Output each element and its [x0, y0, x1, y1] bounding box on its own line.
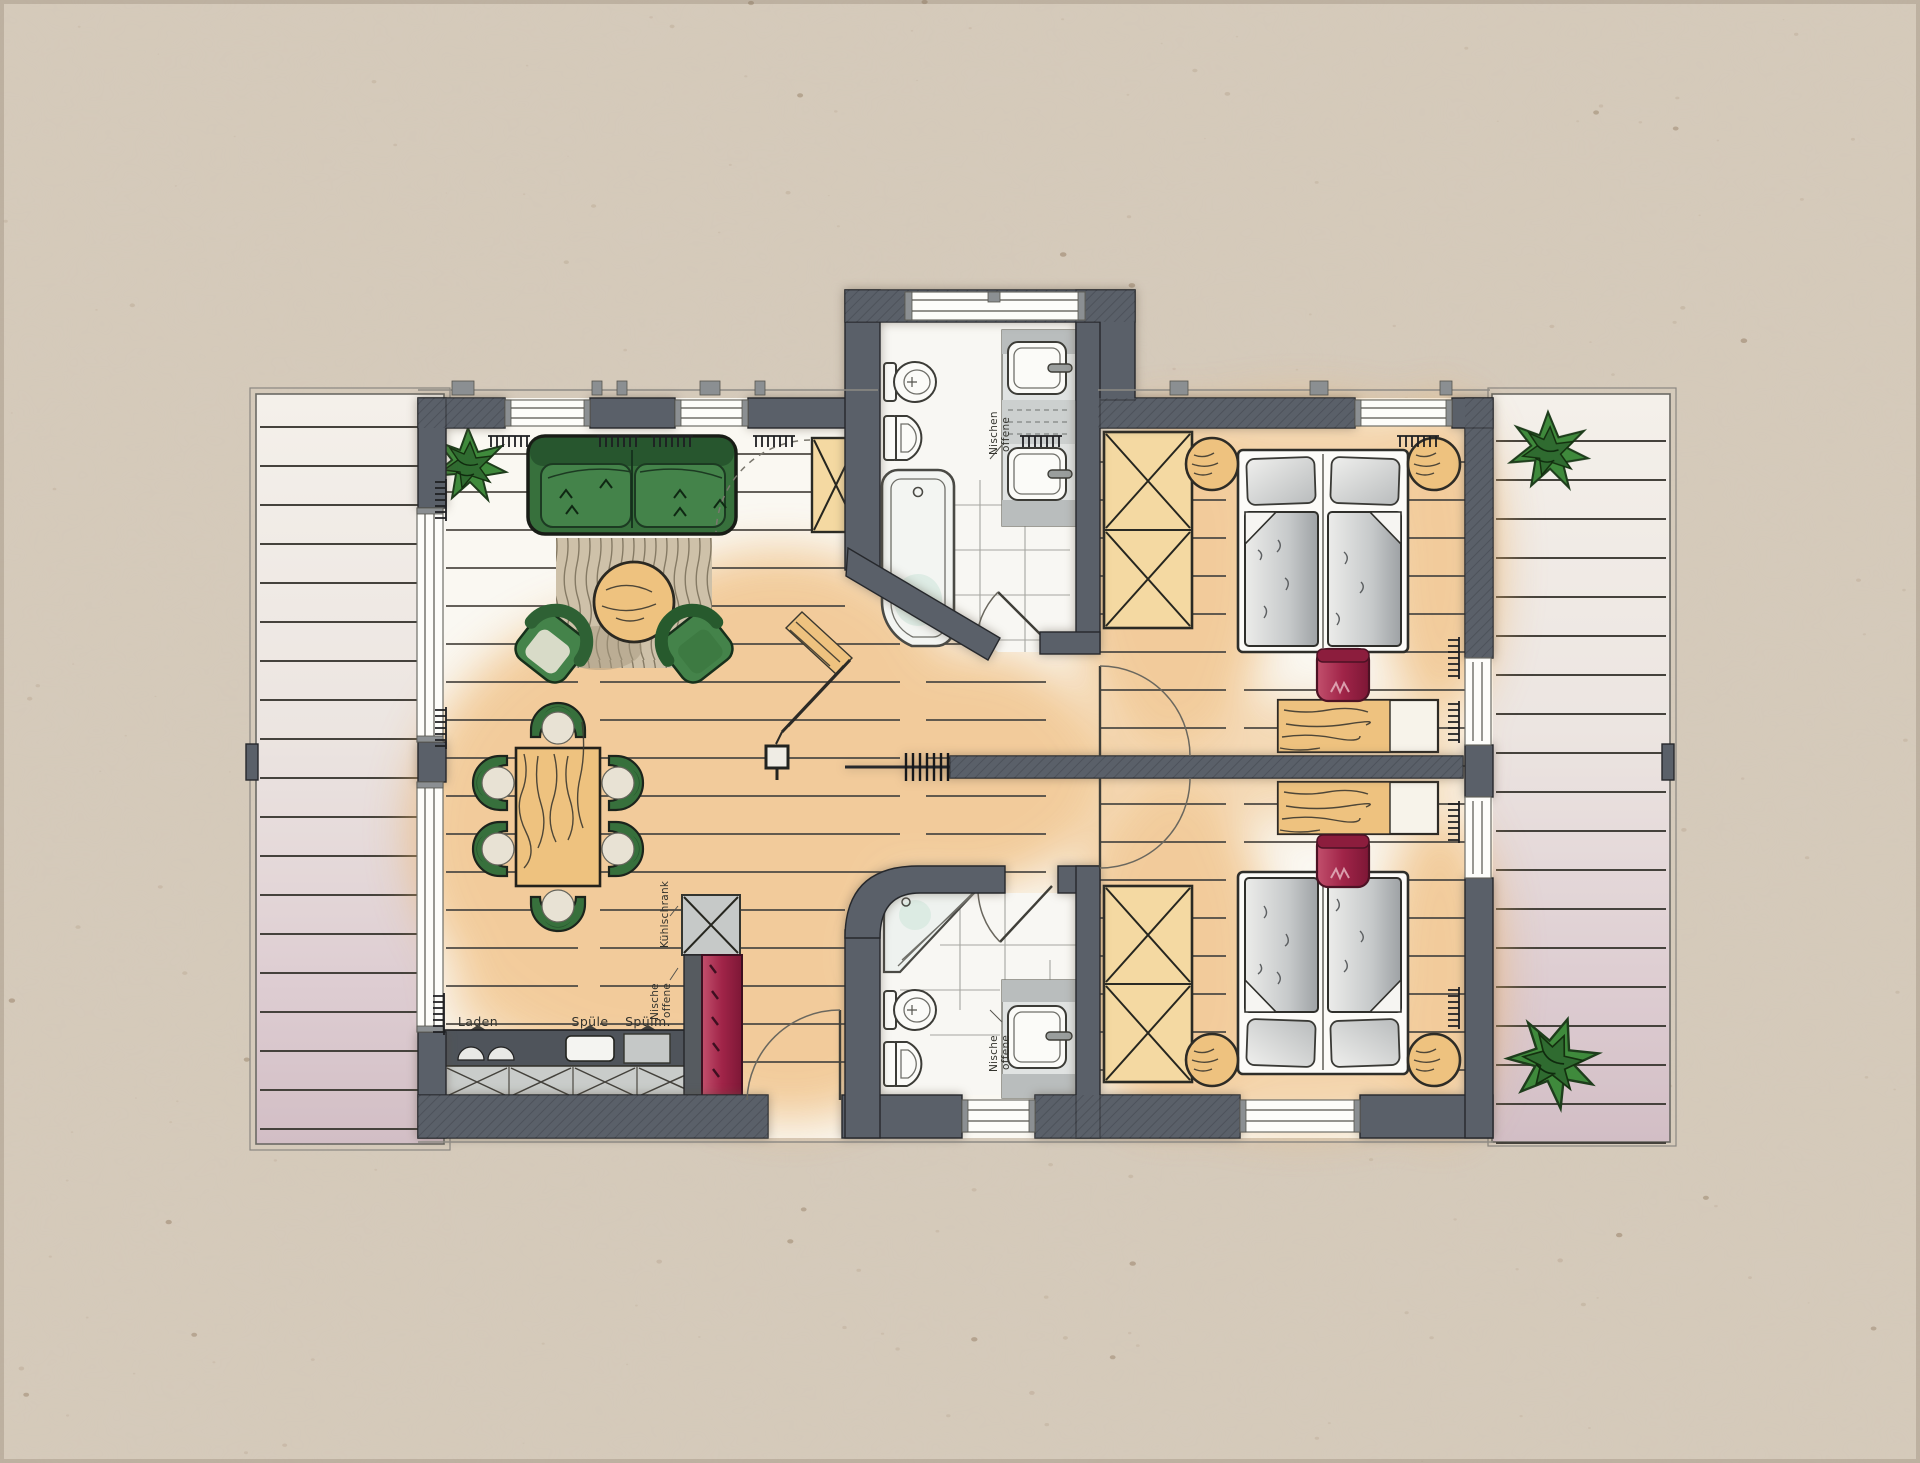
dining-table: [516, 748, 600, 886]
bidet-icon: [884, 362, 936, 402]
window: [675, 400, 748, 426]
window: [1465, 797, 1491, 878]
window: [1355, 400, 1452, 426]
label-open-niche-word1: offene: [1000, 1035, 1012, 1070]
label-open-niches-word2: Nischen: [988, 411, 1000, 455]
sofa: [528, 436, 736, 534]
dishwasher-front: [624, 1034, 670, 1063]
window: [1465, 658, 1491, 745]
terrace-wall-stub: [246, 744, 258, 780]
double-bed-icon: [1238, 872, 1408, 1074]
terrace-deck-planks: [1496, 416, 1666, 1150]
bathroom-bottom: offene Nische: [880, 878, 1076, 1098]
window: [505, 400, 590, 426]
label-open-niche-word2: Nische: [649, 983, 661, 1020]
column-post: [766, 746, 788, 768]
window: [962, 1100, 1035, 1132]
wall-grille-ticks: [906, 753, 948, 781]
floor-plan-drawing: offene Nischen offene Nische: [0, 0, 1920, 1463]
window: [417, 508, 443, 742]
bedside-stool-icon: [1186, 1034, 1238, 1086]
double-sink-vanity: [1002, 330, 1076, 526]
scanned-floor-plan-page: offene Nischen offene Nische: [0, 0, 1920, 1463]
label-open-niche-word2: Nische: [988, 1035, 1000, 1072]
double-bed-icon: [1238, 450, 1408, 652]
wardrobe-icon: [1104, 886, 1192, 1082]
toilet-icon: [884, 1042, 921, 1086]
bedside-stool-icon: [1408, 1034, 1460, 1086]
desk-icon: [1278, 782, 1438, 834]
desk-chair-icon: [1317, 835, 1369, 887]
faucet-icon: [1046, 1032, 1072, 1040]
right-terrace: [1488, 388, 1676, 1150]
kitchen-sink-basin: [566, 1036, 614, 1061]
faucet-icon: [1048, 470, 1072, 478]
window: [1240, 1100, 1360, 1132]
desk-chair-icon: [1317, 649, 1369, 701]
window: [905, 292, 1085, 320]
terrace-deck-planks: [260, 402, 440, 1138]
label-open-niches-word1: offene: [1000, 417, 1012, 452]
label-open-niche-word1: offene: [661, 983, 673, 1018]
toilet-icon: [884, 416, 921, 460]
bidet-icon: [884, 990, 936, 1030]
kitchen-cabinets: [445, 1066, 703, 1098]
terrace-wall-stub: [1662, 744, 1674, 780]
window: [417, 782, 443, 1032]
bedside-stool-icon: [1186, 438, 1238, 490]
bedside-stool-icon: [1408, 438, 1460, 490]
refrigerator: [702, 955, 742, 1101]
faucet-icon: [1048, 364, 1072, 372]
kitchen: Laden Spüle Spülm.: [445, 1014, 703, 1098]
label-fridge: Kühlschrank: [659, 880, 671, 948]
wardrobe-icon: [1104, 432, 1192, 628]
desk-icon: [1278, 700, 1438, 752]
sink-vanity: [1002, 980, 1076, 1098]
